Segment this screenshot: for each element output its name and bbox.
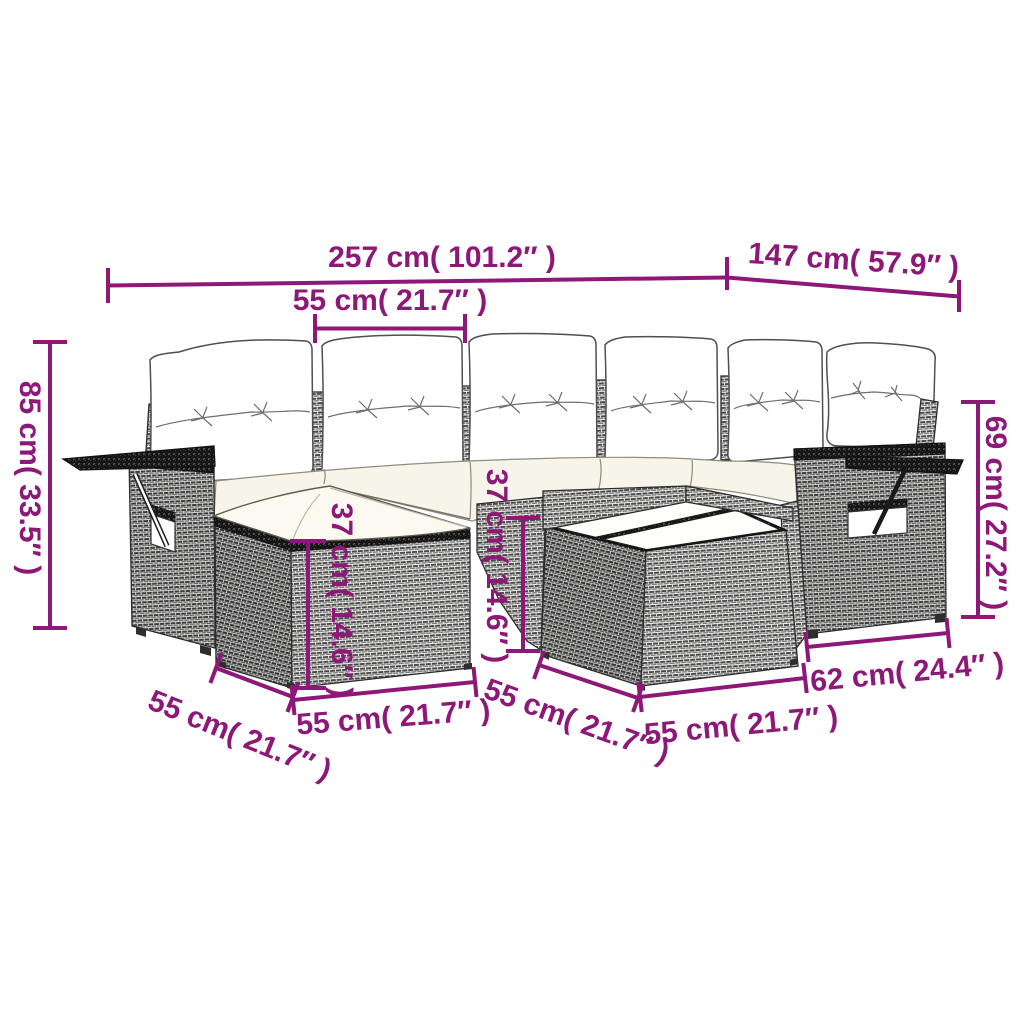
svg-text:69 cm( 27.2″ ): 69 cm( 27.2″ ) xyxy=(979,416,1012,610)
svg-text:37 cm( 14.6″ ): 37 cm( 14.6″ ) xyxy=(480,469,513,663)
svg-text:257 cm( 101.2″ ): 257 cm( 101.2″ ) xyxy=(328,241,556,274)
svg-text:37 cm( 14.6″ ): 37 cm( 14.6″ ) xyxy=(325,503,358,697)
svg-text:55 cm( 21.7″ ): 55 cm( 21.7″ ) xyxy=(293,284,487,317)
svg-text:85 cm( 33.5″ ): 85 cm( 33.5″ ) xyxy=(13,381,46,575)
